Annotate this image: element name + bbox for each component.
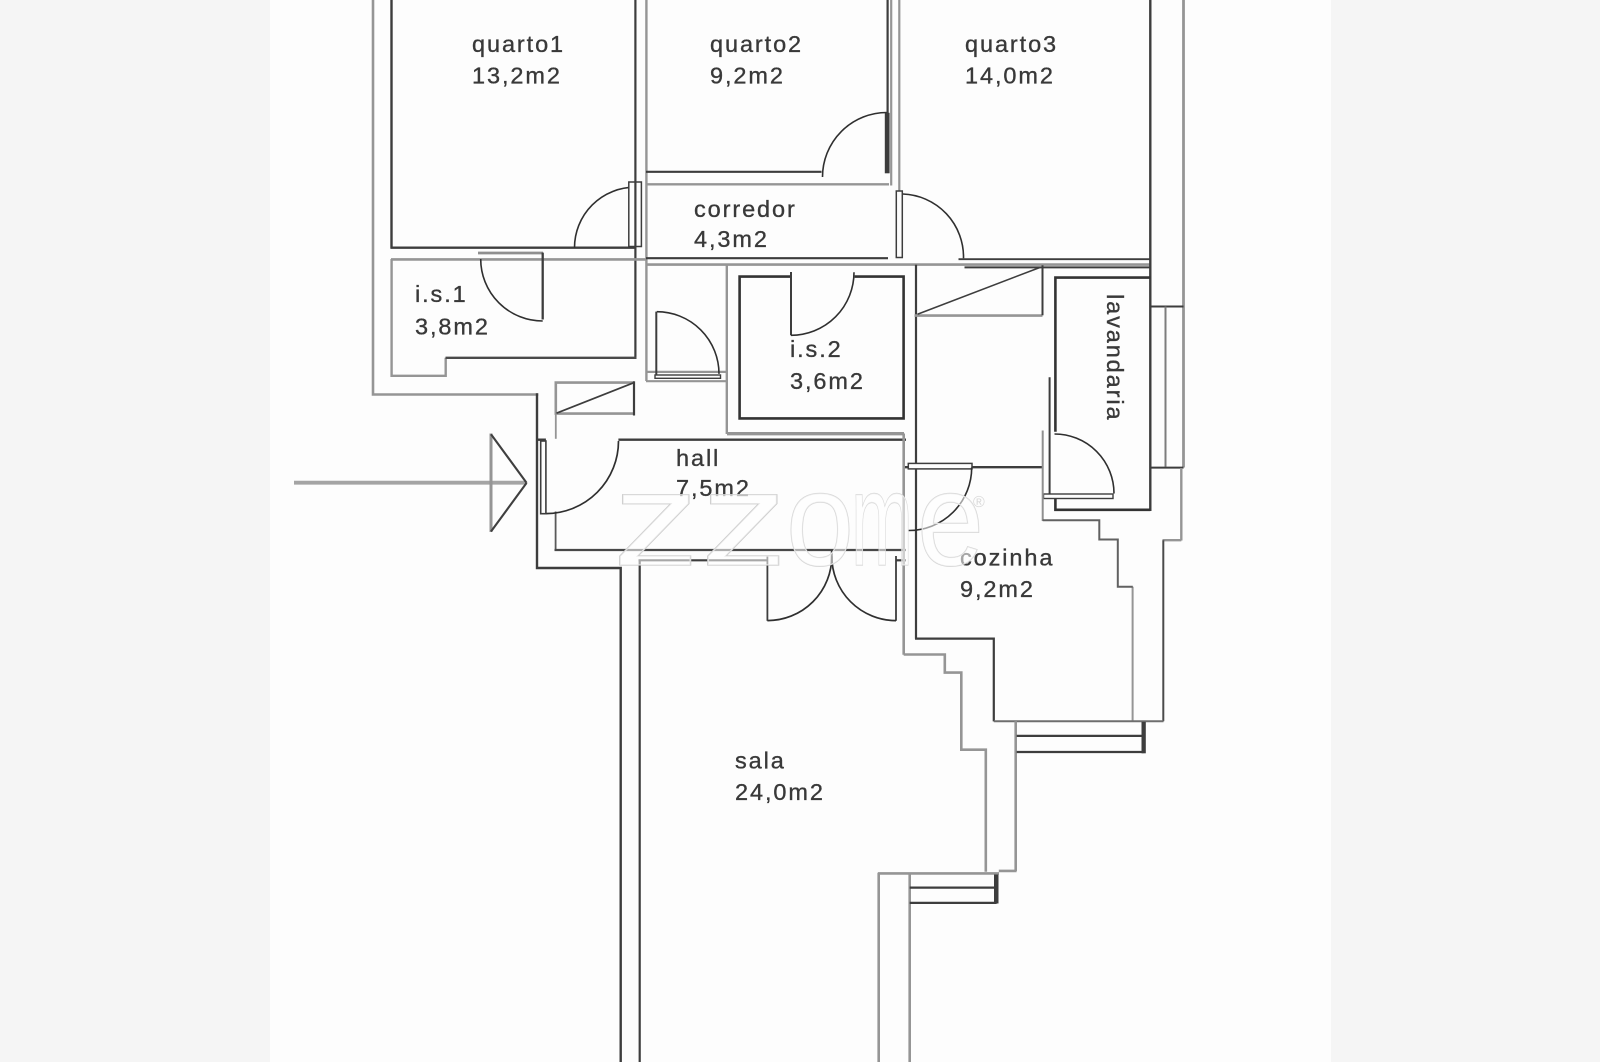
svg-text:m: m [851, 446, 913, 594]
svg-text:i.s.1: i.s.1 [415, 281, 468, 307]
svg-text:9,2m2: 9,2m2 [710, 63, 785, 89]
svg-text:sala: sala [735, 748, 786, 774]
svg-text:14,0m2: 14,0m2 [965, 63, 1055, 89]
svg-text:z: z [613, 446, 699, 594]
svg-text:4,3m2: 4,3m2 [694, 226, 769, 252]
svg-text:3,8m2: 3,8m2 [415, 314, 490, 340]
svg-text:quarto1: quarto1 [472, 31, 565, 57]
svg-text:3,6m2: 3,6m2 [790, 368, 865, 394]
svg-text:o: o [786, 446, 854, 594]
svg-text:lavandaria: lavandaria [1102, 294, 1128, 421]
svg-text:e: e [917, 446, 984, 594]
svg-text:i.s.2: i.s.2 [790, 336, 843, 362]
svg-text:quarto3: quarto3 [965, 31, 1058, 57]
svg-text:24,0m2: 24,0m2 [735, 779, 825, 805]
svg-text:quarto2: quarto2 [710, 31, 803, 57]
svg-text:corredor: corredor [694, 196, 797, 222]
svg-text:®: ® [973, 494, 985, 511]
svg-text:13,2m2: 13,2m2 [472, 63, 562, 89]
svg-text:z: z [701, 446, 787, 594]
